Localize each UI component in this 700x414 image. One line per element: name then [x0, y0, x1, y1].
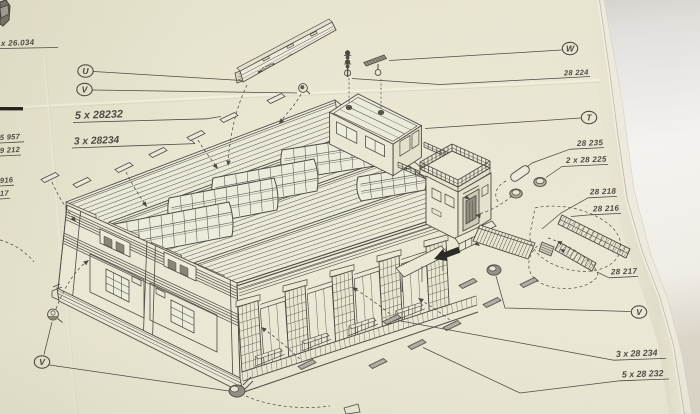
- svg-text:3 x 28 234: 3 x 28 234: [616, 348, 658, 359]
- svg-text:T: T: [586, 113, 592, 123]
- svg-text:W: W: [566, 44, 575, 54]
- svg-text:28 217: 28 217: [610, 267, 638, 277]
- svg-text:x 26.034: x 26.034: [0, 38, 35, 48]
- svg-text:U: U: [82, 66, 89, 76]
- svg-text:3 x 28234: 3 x 28234: [74, 135, 120, 148]
- svg-text:28 218: 28 218: [589, 187, 617, 197]
- svg-text:28 235: 28 235: [576, 138, 604, 148]
- svg-text:916: 916: [0, 175, 14, 185]
- svg-text:17: 17: [0, 189, 10, 198]
- svg-text:5 x 28 232: 5 x 28 232: [622, 368, 664, 379]
- svg-text:28 224: 28 224: [563, 68, 590, 78]
- svg-text:9 212: 9 212: [0, 145, 21, 155]
- svg-text:2 x 28 225: 2 x 28 225: [565, 155, 607, 165]
- svg-text:5 957: 5 957: [0, 132, 21, 142]
- svg-text:28 216: 28 216: [592, 204, 620, 214]
- svg-text:5 x 28232: 5 x 28232: [75, 108, 123, 122]
